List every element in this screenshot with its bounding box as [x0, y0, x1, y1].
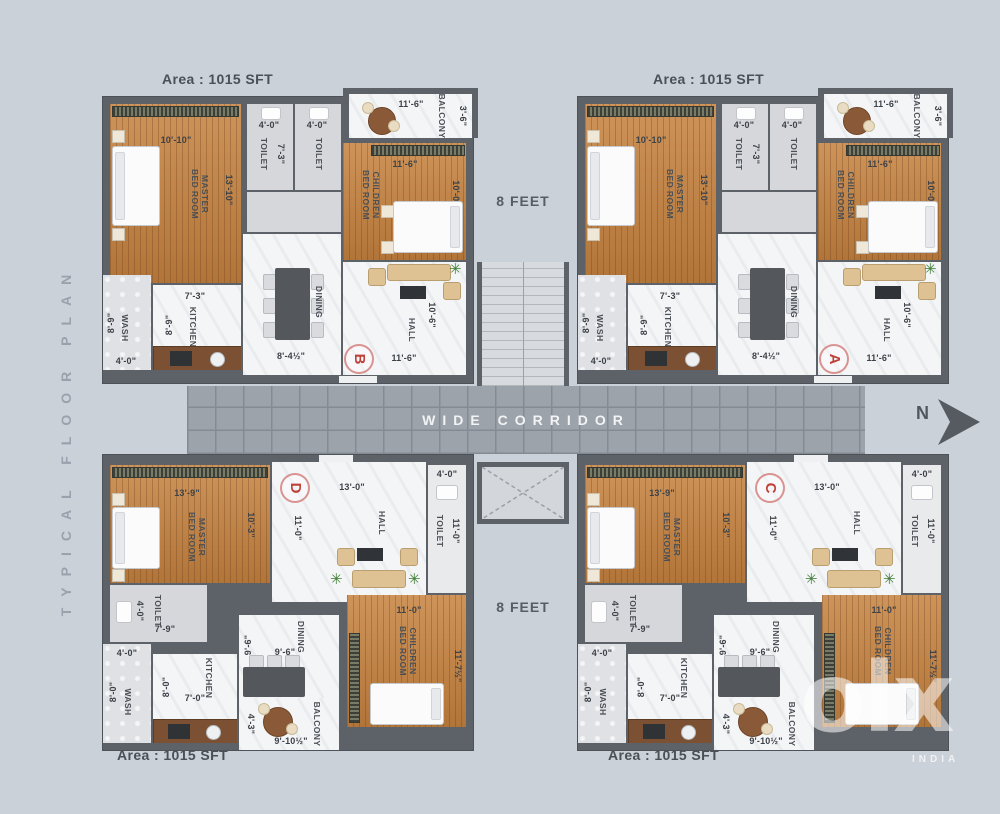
plate-icon	[258, 703, 270, 715]
north-label: N	[916, 403, 929, 424]
dim-toilet-width: 4'-0"	[912, 469, 932, 479]
room-label-children: CHILDREN BED ROOM	[836, 169, 856, 221]
dim-wash-depth: 8'-9"	[581, 313, 591, 333]
room-label-toilet: TOILET	[435, 515, 445, 547]
tv-icon	[875, 286, 901, 299]
armchair-icon	[400, 548, 418, 566]
dim-kitchen-depth: 8'-9"	[164, 315, 174, 335]
nightstand	[112, 493, 125, 506]
room-label-kitchen: KITCHEN	[679, 658, 689, 699]
toilet-fixture-icon	[261, 107, 281, 120]
plate-icon	[761, 723, 773, 735]
stove-icon	[170, 351, 192, 366]
unit-letter: D	[280, 473, 310, 503]
pillow	[925, 206, 935, 248]
toilet-fixture-icon	[436, 485, 458, 500]
chair-icon	[786, 322, 799, 338]
bed	[587, 146, 635, 226]
bed	[393, 201, 463, 253]
sink-icon	[685, 352, 700, 367]
children-bedroom: 11'-0" CHILDREN BED ROOM 11'-7½"	[822, 595, 941, 727]
sofa-icon	[352, 570, 406, 588]
room-label-dining: DINING	[314, 286, 324, 318]
dim-hall-width: 13'-0"	[339, 482, 365, 492]
pillow	[450, 206, 460, 248]
plate-icon	[362, 102, 374, 114]
room-label-wash: WASH	[598, 688, 608, 715]
wash-area: 4'-0" 8'-0" WASH	[103, 644, 151, 743]
dim-toilet-width: 4'-0"	[135, 601, 145, 621]
dim-toilet1-depth: 7'-3"	[751, 144, 761, 164]
toilet-right: 4'-0" TOILET 11'-0"	[428, 465, 466, 593]
armchair-icon	[337, 548, 355, 566]
wash-area: 8'-9" WASH 4'-0"	[578, 275, 626, 370]
dim-wash-depth: 8'-0"	[583, 682, 593, 702]
room-label-toilet2: TOILET	[789, 138, 799, 170]
kitchen: 8'-0" KITCHEN 7'-0"	[153, 654, 237, 743]
plate-icon	[733, 703, 745, 715]
toilet-1: 4'-0" TOILET 7'-3"	[722, 104, 768, 190]
nightstand	[587, 493, 600, 506]
unit-letter: C	[755, 473, 785, 503]
armchair-icon	[843, 268, 861, 286]
balcony: 4'-3" BALCONY 9'-10½"	[239, 698, 339, 750]
wide-corridor: WIDE CORRIDOR	[187, 386, 865, 454]
nightstand	[587, 228, 600, 241]
sofa-icon	[387, 264, 451, 281]
balcony: 4'-3" BALCONY 9'-10½"	[714, 698, 814, 750]
armchair-icon	[368, 268, 386, 286]
plate-icon	[388, 120, 400, 132]
dining-table-icon	[718, 667, 780, 697]
bed	[587, 507, 635, 569]
pillow	[906, 688, 916, 720]
plant-icon: ✳	[449, 262, 462, 277]
bed	[845, 683, 919, 725]
master-bedroom: 13'-9" MASTER BED ROOM 10'-3"	[110, 465, 270, 583]
wash-area: 8'-9" WASH 4'-0"	[103, 275, 151, 370]
plate-icon	[286, 723, 298, 735]
dim-master-depth: 10'-3"	[721, 512, 731, 538]
entrance-door-gap	[319, 455, 353, 462]
sofa-icon	[827, 570, 881, 588]
room-label-children: CHILDREN BED ROOM	[398, 625, 418, 677]
dim-hall-depth: 11'-0"	[768, 515, 778, 540]
nightstand	[587, 569, 600, 582]
window-strip-icon	[349, 633, 360, 723]
entrance-door-gap	[794, 455, 828, 462]
room-label-master: MASTER BED ROOM	[662, 511, 682, 563]
dim-children-width: 11'-0"	[871, 605, 896, 615]
dim-dining-depth: 9'-6"	[243, 635, 253, 655]
dim-children-width: 11'-6"	[867, 159, 892, 169]
dim-toilet-depth: 7'-9"	[155, 624, 175, 634]
room-label-balcony: BALCONY	[312, 702, 322, 747]
dim-balcony-width: 9'-10½"	[274, 736, 307, 746]
dining-area: DINING 8'-4½"	[718, 234, 816, 375]
dim-master-width: 10'-10"	[636, 135, 667, 145]
room-label-kitchen: KITCHEN	[663, 307, 673, 348]
dim-wash-width: 4'-0"	[116, 356, 136, 366]
room-label-hall: HALL	[377, 511, 387, 535]
unit-a: 10'-10" MASTER BED ROOM 13'-10" 4'-0" TO…	[578, 97, 948, 383]
toilet-fixture-icon	[736, 107, 756, 120]
toilet-2: 4'-0" TOILET	[295, 104, 341, 190]
plate-icon	[837, 102, 849, 114]
entrance-door-gap	[814, 376, 852, 383]
nightstand	[112, 130, 125, 143]
dining-table-icon	[243, 667, 305, 697]
balcony: 11'-6" BALCONY 3'-6"	[343, 88, 478, 138]
plant-icon: ✳	[883, 572, 896, 587]
room-label-children: CHILDREN BED ROOM	[361, 169, 381, 221]
tv-icon	[357, 548, 383, 561]
pillow	[431, 688, 441, 720]
master-bedroom: 13'-9" MASTER BED ROOM 10'-3"	[585, 465, 745, 583]
dim-balcony-width: 11'-6"	[398, 99, 423, 109]
dim-master-depth: 10'-3"	[246, 512, 256, 538]
dim-dining-width: 8'-4½"	[277, 351, 305, 361]
passage	[247, 192, 341, 232]
kitchen-counter-icon	[153, 346, 241, 370]
dim-wash-width: 4'-0"	[117, 648, 137, 658]
dim-wash-width: 4'-0"	[592, 648, 612, 658]
toilet-fixture-icon	[309, 107, 329, 120]
nightstand	[112, 569, 125, 582]
room-label-wash: WASH	[120, 314, 130, 341]
window-strip-icon	[587, 106, 714, 117]
plant-icon: ✳	[924, 262, 937, 277]
dim-toilet1-width: 4'-0"	[734, 120, 754, 130]
dim-toilet-depth: 11'-0"	[451, 518, 461, 543]
children-bedroom: 11'-6" CHILDREN BED ROOM 10'-0"	[343, 143, 466, 260]
room-label-children: CHILDREN BED ROOM	[873, 625, 893, 677]
window-strip-icon	[587, 467, 743, 478]
window-strip-icon	[112, 106, 239, 117]
room-label-balcony: BALCONY	[912, 94, 922, 138]
stove-icon	[645, 351, 667, 366]
dim-hall-depth: 11'-0"	[293, 515, 303, 540]
dim-children-width: 11'-0"	[396, 605, 421, 615]
plant-icon: ✳	[805, 572, 818, 587]
dim-kitchen-width: 7'-3"	[185, 291, 205, 301]
dim-toilet-depth: 7'-9"	[630, 624, 650, 634]
dim-toilet-depth: 11'-0"	[926, 518, 936, 543]
dim-master-width: 10'-10"	[161, 135, 192, 145]
room-label-balcony: BALCONY	[787, 702, 797, 747]
toilet-fixture-icon	[591, 601, 607, 623]
chair-icon	[311, 322, 324, 338]
side-title: TYPICAL FLOOR PLAN	[58, 264, 74, 617]
toilet-1: 4'-0" TOILET 7'-3"	[247, 104, 293, 190]
dining-table-icon	[275, 268, 310, 340]
dim-dining-depth: 9'-6"	[718, 635, 728, 655]
dim-toilet1-width: 4'-0"	[259, 120, 279, 130]
sink-icon	[206, 725, 221, 740]
room-label-master: MASTER BED ROOM	[665, 168, 685, 220]
room-label-wash: WASH	[595, 314, 605, 341]
stove-icon	[168, 724, 190, 739]
plant-icon: ✳	[408, 572, 421, 587]
dim-wash-width: 4'-0"	[591, 356, 611, 366]
room-label-toilet: TOILET	[910, 515, 920, 547]
stove-icon	[643, 724, 665, 739]
pillow	[590, 152, 600, 220]
dim-toilet-width: 4'-0"	[610, 601, 620, 621]
window-strip-icon	[371, 145, 465, 156]
dining-area: DINING 8'-4½"	[243, 234, 341, 375]
unit-d: 13'-9" MASTER BED ROOM 10'-3" 13'-0" 11'…	[103, 455, 473, 750]
unit-letter: B	[344, 344, 374, 374]
dim-hall-width: 11'-6"	[391, 353, 416, 363]
tv-icon	[400, 286, 426, 299]
dim-children-width: 11'-6"	[392, 159, 417, 169]
dim-hall-depth: 10'-6"	[427, 302, 437, 328]
room-label-kitchen: KITCHEN	[204, 658, 214, 699]
dim-master-width: 13'-9"	[649, 488, 675, 498]
room-label-master: MASTER BED ROOM	[187, 511, 207, 563]
room-label-toilet2: TOILET	[314, 138, 324, 170]
room-label-dining: DINING	[296, 621, 306, 653]
room-label-hall: HALL	[852, 511, 862, 535]
room-label-toilet: TOILET	[153, 595, 163, 627]
olx-country-label: INDIA	[912, 754, 959, 765]
dim-dining-width: 8'-4½"	[752, 351, 780, 361]
lift-shaft	[477, 462, 569, 524]
plate-icon	[863, 120, 875, 132]
window-strip-icon	[846, 145, 940, 156]
area-label-top-left: Area : 1015 SFT	[162, 71, 273, 87]
master-bedroom: 10'-10" MASTER BED ROOM 13'-10"	[110, 104, 241, 283]
toilet-2: 4'-0" TOILET	[770, 104, 816, 190]
window-strip-icon	[824, 633, 835, 723]
passage	[722, 192, 816, 232]
bed	[112, 507, 160, 569]
children-bedroom: 11'-6" CHILDREN BED ROOM 10'-0"	[818, 143, 941, 260]
kitchen-counter-icon	[153, 719, 237, 743]
pillow	[115, 512, 125, 564]
unit-b: 10'-10" MASTER BED ROOM 13'-10" 4'-0" TO…	[103, 97, 473, 383]
dim-hall-depth: 10'-6"	[902, 302, 912, 328]
room-label-hall: HALL	[882, 318, 892, 342]
dim-kitchen-width: 7'-0"	[185, 693, 205, 703]
corridor-label: WIDE CORRIDOR	[422, 412, 630, 428]
room-label-kitchen: KITCHEN	[188, 307, 198, 348]
area-label-top-right: Area : 1015 SFT	[653, 71, 764, 87]
toilet-left: 4'-0" TOILET 7'-9"	[585, 585, 682, 642]
kitchen-counter-icon	[628, 346, 716, 370]
north-arrow-icon	[938, 397, 990, 447]
dining-table-icon	[750, 268, 785, 340]
toilet-fixture-icon	[784, 107, 804, 120]
kitchen-counter-icon	[628, 719, 712, 743]
plant-icon: ✳	[330, 572, 343, 587]
kitchen: 8'-0" KITCHEN 7'-0"	[628, 654, 712, 743]
dim-kitchen-width: 7'-0"	[660, 693, 680, 703]
entrance-door-gap	[339, 376, 377, 383]
dim-toilet2-width: 4'-0"	[307, 120, 327, 130]
dim-balcony-depth: 3'-6"	[458, 106, 468, 126]
room-label-toilet: TOILET	[628, 595, 638, 627]
dim-balcony-depth: 4'-3"	[721, 714, 731, 734]
toilet-fixture-icon	[116, 601, 132, 623]
dim-balcony-depth: 3'-6"	[933, 106, 943, 126]
wash-area: 4'-0" 8'-0" WASH	[578, 644, 626, 743]
sink-icon	[681, 725, 696, 740]
sink-icon	[210, 352, 225, 367]
dim-children-depth: 11'-7½"	[928, 650, 938, 683]
dim-kitchen-depth: 8'-9"	[639, 315, 649, 335]
dim-hall-width: 13'-0"	[814, 482, 840, 492]
sofa-icon	[862, 264, 926, 281]
dim-hall-width: 11'-6"	[866, 353, 891, 363]
kitchen: 7'-3" 8'-9" KITCHEN	[153, 285, 241, 370]
shaft-cross-icon	[482, 467, 564, 519]
dim-wash-depth: 8'-0"	[108, 682, 118, 702]
unit-c: 13'-9" MASTER BED ROOM 10'-3" 13'-0" 11'…	[578, 455, 948, 750]
armchair-icon	[918, 282, 936, 300]
dim-kitchen-depth: 8'-0"	[161, 677, 171, 697]
room-label-wash: WASH	[123, 688, 133, 715]
dim-master-depth: 13'-10"	[699, 175, 709, 206]
room-label-toilet1: TOILET	[259, 138, 269, 170]
dim-balcony-width: 11'-6"	[873, 99, 898, 109]
dim-children-depth: 11'-7½"	[453, 650, 463, 683]
dim-balcony-width: 9'-10½"	[749, 736, 782, 746]
toilet-left: 4'-0" TOILET 7'-9"	[110, 585, 207, 642]
bed	[112, 146, 160, 226]
armchair-icon	[875, 548, 893, 566]
dim-balcony-depth: 4'-3"	[246, 714, 256, 734]
room-label-dining: DINING	[789, 286, 799, 318]
dim-master-depth: 13'-10"	[224, 175, 234, 206]
room-label-toilet1: TOILET	[734, 138, 744, 170]
floor-plan-canvas: TYPICAL FLOOR PLAN Area : 1015 SFT Area …	[0, 0, 1000, 814]
staircase	[477, 262, 569, 386]
nightstand	[587, 130, 600, 143]
window-strip-icon	[112, 467, 268, 478]
balcony: 11'-6" BALCONY 3'-6"	[818, 88, 953, 138]
nightstand	[112, 228, 125, 241]
kitchen: 7'-3" 8'-9" KITCHEN	[628, 285, 716, 370]
tv-icon	[832, 548, 858, 561]
room-label-hall: HALL	[407, 318, 417, 342]
dim-master-width: 13'-9"	[174, 488, 200, 498]
dim-toilet-width: 4'-0"	[437, 469, 457, 479]
toilet-fixture-icon	[911, 485, 933, 500]
gap-label-bottom: 8 FEET	[473, 599, 573, 615]
master-bedroom: 10'-10" MASTER BED ROOM 13'-10"	[585, 104, 716, 283]
dim-wash-depth: 8'-9"	[106, 313, 116, 333]
bed	[370, 683, 444, 725]
armchair-icon	[812, 548, 830, 566]
pillow	[590, 512, 600, 564]
children-bedroom: 11'-0" CHILDREN BED ROOM 11'-7½"	[347, 595, 466, 727]
dim-kitchen-depth: 8'-0"	[636, 677, 646, 697]
room-label-master: MASTER BED ROOM	[190, 168, 210, 220]
room-label-balcony: BALCONY	[437, 94, 447, 138]
dim-toilet1-depth: 7'-3"	[276, 144, 286, 164]
armchair-icon	[443, 282, 461, 300]
dim-toilet2-width: 4'-0"	[782, 120, 802, 130]
room-label-dining: DINING	[771, 621, 781, 653]
bed	[868, 201, 938, 253]
dim-kitchen-width: 7'-3"	[660, 291, 680, 301]
pillow	[115, 152, 125, 220]
gap-label-top: 8 FEET	[473, 193, 573, 209]
toilet-right: 4'-0" TOILET 11'-0"	[903, 465, 941, 593]
unit-letter: A	[819, 344, 849, 374]
